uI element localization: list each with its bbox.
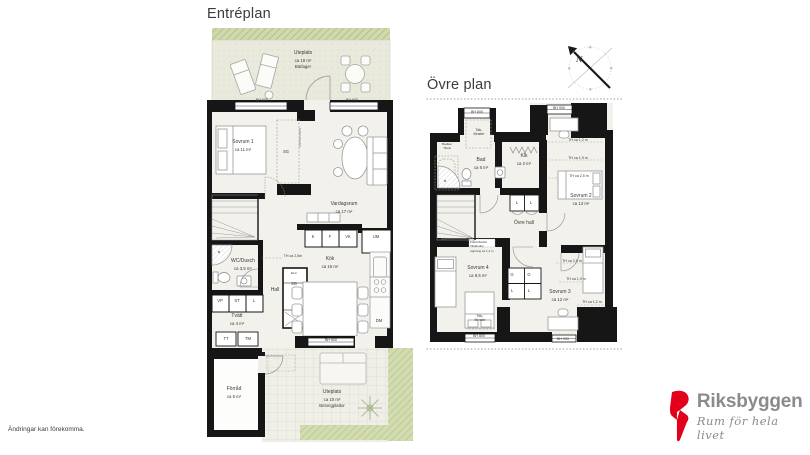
window-label-bh600: BH 600 xyxy=(346,98,358,102)
room-name: Tvätt xyxy=(230,313,244,321)
label-ceiling-height: TH ca 2,5 m xyxy=(562,259,582,263)
room-label-kok: Kök ca 16 m² xyxy=(322,256,339,270)
label-sg-wardrobe: SG xyxy=(291,281,297,286)
label-wardrobe: G xyxy=(527,272,530,277)
room-name: Sovrum 1 xyxy=(232,139,253,147)
brand-tagline: Rum för hela livet xyxy=(697,414,810,442)
ovreplan-title: Övre plan xyxy=(427,77,492,93)
room-note: Bärlager xyxy=(294,64,312,70)
label-dryer: TT xyxy=(223,336,228,341)
forrad-door-opening xyxy=(258,356,265,373)
label-roof-window: Tak-fönster xyxy=(471,128,488,137)
wall-stub-bottom xyxy=(277,184,311,195)
outdoor-sofa-icon xyxy=(320,353,366,384)
label-ceiling-height: TH ca 1,2 m xyxy=(568,138,588,142)
wall-sovrum1 xyxy=(212,193,265,199)
room-name: Bad xyxy=(474,157,488,165)
kitchen-table-icon xyxy=(292,282,368,336)
bed-single-sovrum4-icon xyxy=(435,257,456,307)
room-label-sovrum4: Sovrum 4 ca 9,5 m² xyxy=(467,265,488,279)
room-note: Betongplattor xyxy=(319,403,345,409)
room-label-uteplats-bottom: Uteplats ca 10 m² Betongplattor xyxy=(319,389,345,409)
room-area: ca 19 m² xyxy=(294,58,312,64)
room-name: Sovrum 2 xyxy=(570,193,591,201)
room-name: Klk xyxy=(517,153,531,161)
room-name: Uteplats xyxy=(294,50,312,58)
label-oven-micro: UM xyxy=(373,234,380,239)
room-label-forrad: Förråd ca 5 m² xyxy=(227,386,242,400)
riksbyggen-logo-text: Riksbyggen Rum för hela livet xyxy=(697,391,810,442)
window-label-bh600: BH 600 xyxy=(325,338,337,342)
room-label-sovrum3: Sovrum 3 ca 12 m² xyxy=(549,289,570,303)
grass-right xyxy=(388,348,413,441)
wall-wc-bottom xyxy=(212,290,263,295)
label-line: Tillval xyxy=(442,146,452,150)
plant-icon xyxy=(358,396,382,420)
label-freezer: F xyxy=(329,234,332,239)
disclaimer-text: Ändringar kan förekomma. xyxy=(8,426,85,433)
compass-icon xyxy=(548,34,632,100)
window-label-bh600: BH 600 xyxy=(256,98,268,102)
room-label-tvatt: Tvätt ca 4 m² xyxy=(230,313,244,327)
label-bathtub-option: Badkar Tillval xyxy=(442,142,452,151)
wall-kitchen-top xyxy=(297,224,362,230)
room-area: ca 12 m² xyxy=(549,297,570,303)
label-vk: VK xyxy=(345,234,351,239)
bed-sovrum3-icon xyxy=(583,247,603,293)
label-linen-closet: L xyxy=(530,200,532,205)
wall-wc-right xyxy=(258,240,263,290)
window-bh600-top-right xyxy=(330,102,378,110)
label-linen-closet: L xyxy=(516,200,518,205)
label-dishwasher: DM xyxy=(376,318,383,323)
label-st: ST xyxy=(234,298,239,303)
room-area: ca 16 m² xyxy=(322,264,339,270)
label-fridge: K xyxy=(312,234,315,239)
room-label-hall: Hall xyxy=(271,287,280,295)
label-vent-block: Frånluftsdon Tilluftsdon öppning ca 1,2 … xyxy=(470,240,494,253)
label-vent-vertical: Frånluftsdon xyxy=(298,128,302,148)
room-area: ca 2 m² xyxy=(517,161,531,167)
bad-door-opening xyxy=(480,188,500,195)
label-elc: ELC xyxy=(291,271,297,275)
label-sg-wardrobe: SG xyxy=(283,149,289,154)
window-label-bh900: BH 900 xyxy=(557,337,569,341)
ovre-washbasin-icon xyxy=(495,167,505,178)
window-bh600-top-left xyxy=(235,102,287,110)
room-area: ca 5 m² xyxy=(227,394,242,400)
compass-north-label: N xyxy=(576,55,583,64)
room-label-sovrum1: Sovrum 1 ca 11 m² xyxy=(232,139,253,153)
floorplan-canvas: N Entréplan Övre plan Uteplats ca 19 m² … xyxy=(0,0,810,455)
room-name: Sovrum 4 xyxy=(467,265,488,273)
label-wardrobe: G xyxy=(510,272,513,277)
room-area: ca 9,5 m² xyxy=(467,273,488,279)
washbasin-icon xyxy=(237,276,251,286)
label-washer: TM xyxy=(245,336,251,341)
room-area: ca 11 m² xyxy=(232,147,253,153)
room-name: WC/Dusch xyxy=(231,258,255,266)
room-label-vardagsrum: Vardagsrum ca 17 m² xyxy=(331,201,358,215)
room-name: Kök xyxy=(322,256,339,264)
hedge-strip xyxy=(212,28,390,40)
label-linen-closet: L xyxy=(528,288,530,293)
label-roof-window: Tak-fönster xyxy=(472,314,489,323)
room-area: ca 17 m² xyxy=(331,209,358,215)
room-area: ca 13 m² xyxy=(570,201,591,207)
room-area: ca 3,5 m² xyxy=(231,266,255,272)
label-ceiling-height: TH ca 2,5 m xyxy=(569,174,589,178)
room-label-ovre-hall: Övre hall xyxy=(514,220,534,228)
grass-bottom xyxy=(300,425,388,440)
patio-door-opening xyxy=(355,336,375,348)
room-label-bad: Bad ca 6 m² xyxy=(474,157,488,171)
label-l: L xyxy=(253,298,255,303)
label-ceiling-height: TH ca 1,2 m xyxy=(582,300,602,304)
room-label-klk: Klk ca 2 m² xyxy=(517,153,531,167)
sovrum2-door-opening xyxy=(539,213,547,231)
room-area: ca 4 m² xyxy=(230,321,244,327)
entreplan-title: Entréplan xyxy=(207,6,271,22)
riksbyggen-logo-icon xyxy=(666,390,690,442)
room-label-wc: WC/Dusch ca 3,5 m² xyxy=(231,258,255,272)
label-ceiling-height: TH ca 1,9 m xyxy=(566,277,586,281)
sofa-icon xyxy=(367,137,387,185)
label-ceiling-height: TH ca 2,5m xyxy=(284,254,303,258)
label-linen-closet: L xyxy=(511,288,513,293)
wall-stub-top xyxy=(297,110,315,121)
riksbyggen-logo: Riksbyggen Rum för hela livet xyxy=(666,390,810,442)
room-label-uteplats-top: Uteplats ca 19 m² Bärlager xyxy=(294,50,312,70)
toilet-icon xyxy=(213,272,230,283)
room-name: Uteplats xyxy=(319,389,345,397)
room-name: Förråd xyxy=(227,386,242,394)
room-area: ca 6 m² xyxy=(474,165,488,171)
wall-stair-wc xyxy=(207,240,263,245)
window-label-bh800: BH 800 xyxy=(471,110,483,114)
kitchen-counter xyxy=(370,252,390,328)
label-ceiling-height: TH ca 1,9 m xyxy=(568,156,588,160)
label-line: öppning ca 1,2 m xyxy=(470,249,494,253)
label-vp: VP xyxy=(217,298,223,303)
room-name: Sovrum 3 xyxy=(549,289,570,297)
window-label-bh800: BH 800 xyxy=(473,334,485,338)
room-label-sovrum2: Sovrum 2 ca 13 m² xyxy=(570,193,591,207)
window-label-bh900: BH 900 xyxy=(553,106,565,110)
room-name: Vardagsrum xyxy=(331,201,358,209)
ovre-toilet-icon xyxy=(462,169,471,187)
brand-name: Riksbyggen xyxy=(697,391,810,413)
